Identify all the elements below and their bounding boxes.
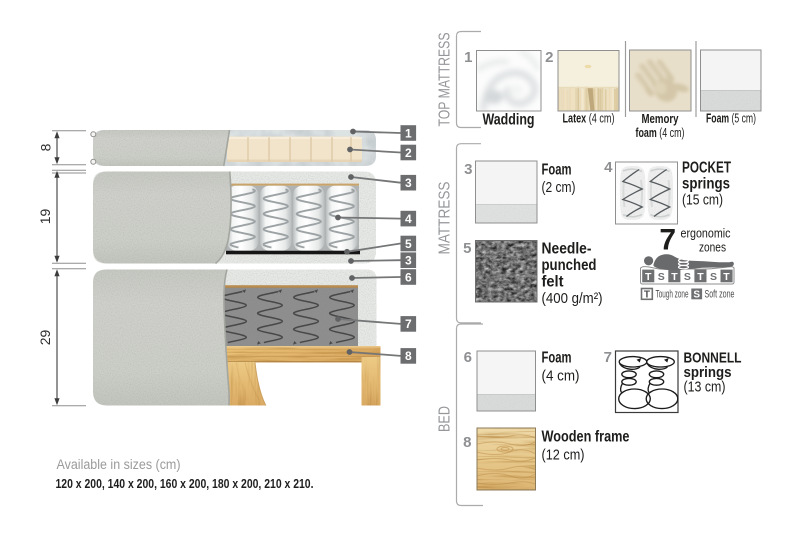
svg-text:(12 cm): (12 cm) <box>542 447 585 464</box>
svg-text:Foam (5 cm): Foam (5 cm) <box>706 111 756 126</box>
svg-text:S: S <box>658 271 665 283</box>
svg-text:8: 8 <box>38 143 54 151</box>
svg-text:7: 7 <box>405 317 412 331</box>
svg-text:19: 19 <box>37 209 53 225</box>
svg-text:5: 5 <box>463 240 471 257</box>
svg-text:T: T <box>671 271 678 283</box>
svg-text:springs: springs <box>682 176 730 193</box>
svg-text:Memory: Memory <box>642 111 680 126</box>
svg-text:7: 7 <box>604 349 612 366</box>
svg-text:T: T <box>697 271 704 283</box>
svg-text:T: T <box>723 271 730 283</box>
svg-text:MATTRESS: MATTRESS <box>437 182 454 255</box>
svg-text:(13 cm): (13 cm) <box>684 380 726 396</box>
svg-text:TOP MATTRESS: TOP MATTRESS <box>437 33 454 127</box>
svg-text:(15 cm): (15 cm) <box>682 192 723 209</box>
svg-text:Wooden frame: Wooden frame <box>542 429 630 446</box>
svg-text:4: 4 <box>405 212 412 226</box>
svg-text:Soft zone: Soft zone <box>705 289 735 301</box>
svg-text:4: 4 <box>604 159 613 176</box>
svg-text:8: 8 <box>463 434 471 451</box>
svg-text:Wadding: Wadding <box>483 112 535 129</box>
svg-text:T: T <box>645 271 652 283</box>
svg-text:Needle-: Needle- <box>542 241 592 258</box>
svg-text:5: 5 <box>405 237 412 251</box>
svg-text:POCKET: POCKET <box>682 160 731 177</box>
svg-text:3: 3 <box>464 161 472 178</box>
svg-text:3: 3 <box>405 254 412 268</box>
svg-text:7: 7 <box>659 224 676 257</box>
svg-text:S: S <box>710 271 717 283</box>
svg-text:Foam: Foam <box>542 350 572 367</box>
svg-text:felt: felt <box>542 274 564 291</box>
svg-text:2: 2 <box>545 49 553 66</box>
svg-text:120 x 200, 140 x 200, 160 x 20: 120 x 200, 140 x 200, 160 x 200, 180 x 2… <box>56 477 314 491</box>
svg-text:foam (4 cm): foam (4 cm) <box>636 125 685 140</box>
svg-text:springs: springs <box>684 364 732 381</box>
svg-text:ergonomic: ergonomic <box>681 227 731 241</box>
svg-text:Available in sizes (cm): Available in sizes (cm) <box>57 457 181 472</box>
svg-text:(400 g/m²): (400 g/m²) <box>542 290 603 307</box>
svg-text:8: 8 <box>405 349 412 363</box>
svg-text:Tough zone: Tough zone <box>656 289 689 301</box>
svg-text:zones: zones <box>699 241 726 255</box>
svg-text:Foam: Foam <box>542 162 572 179</box>
svg-text:6: 6 <box>405 270 412 284</box>
svg-text:S: S <box>693 289 700 300</box>
svg-text:29: 29 <box>37 330 53 346</box>
svg-text:1: 1 <box>464 49 472 66</box>
svg-text:6: 6 <box>464 349 472 366</box>
svg-text:T: T <box>644 289 650 300</box>
svg-text:BED: BED <box>437 406 454 432</box>
svg-text:1: 1 <box>405 126 412 140</box>
svg-text:(4 cm): (4 cm) <box>542 368 580 385</box>
svg-text:2: 2 <box>405 146 412 160</box>
svg-text:S: S <box>684 271 691 283</box>
svg-text:(2 cm): (2 cm) <box>542 179 576 196</box>
svg-text:punched: punched <box>542 257 597 274</box>
svg-text:3: 3 <box>405 176 412 190</box>
svg-text:Latex (4 cm): Latex (4 cm) <box>563 111 615 126</box>
